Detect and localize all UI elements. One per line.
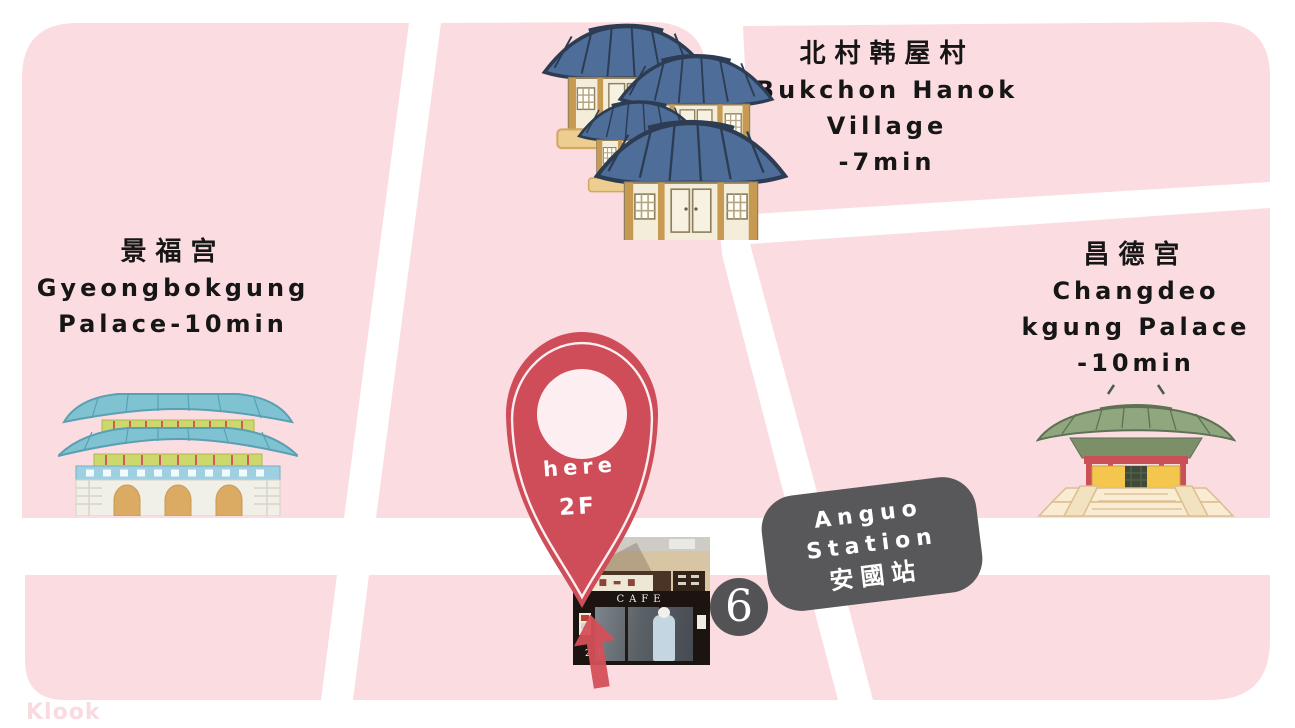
gyeongbokgung-name-en: Gyeongbokgung (20, 270, 326, 306)
photo-person (653, 615, 675, 661)
gyeongbokgung-name-cjk: 景福宫 (20, 234, 326, 270)
changdeokgung-palace-illustration (1036, 382, 1236, 517)
illustrated-map: 景福宫 Gyeongbokgung Palace-10min 北村韩屋村 Buk… (0, 0, 1295, 728)
subway-line-badge: 6 (710, 578, 768, 636)
changdeokgung-name-en2: kgung Palace (1000, 309, 1272, 345)
watermark: Klook (26, 700, 100, 725)
changdeokgung-label: 昌德宫 Changdeo kgung Palace -10min (1000, 237, 1272, 381)
changdeokgung-name-cjk: 昌德宫 (1000, 237, 1272, 273)
pin-floor-label: 2F (532, 492, 623, 523)
photo-upper-window (669, 539, 695, 549)
changdeokgung-distance: -10min (1000, 345, 1272, 381)
gyeongbokgung-distance: Palace-10min (20, 306, 326, 342)
gyeongbokgung-gate-illustration (58, 376, 298, 516)
map-block-bottom-left (25, 575, 337, 700)
changdeokgung-name-en: Changdeo (1000, 273, 1272, 309)
gyeongbokgung-label: 景福宫 Gyeongbokgung Palace-10min (20, 234, 326, 342)
hanok-village-illustration (528, 10, 798, 240)
hanok-house-icon (597, 122, 785, 240)
photo-small-sign (697, 615, 706, 629)
